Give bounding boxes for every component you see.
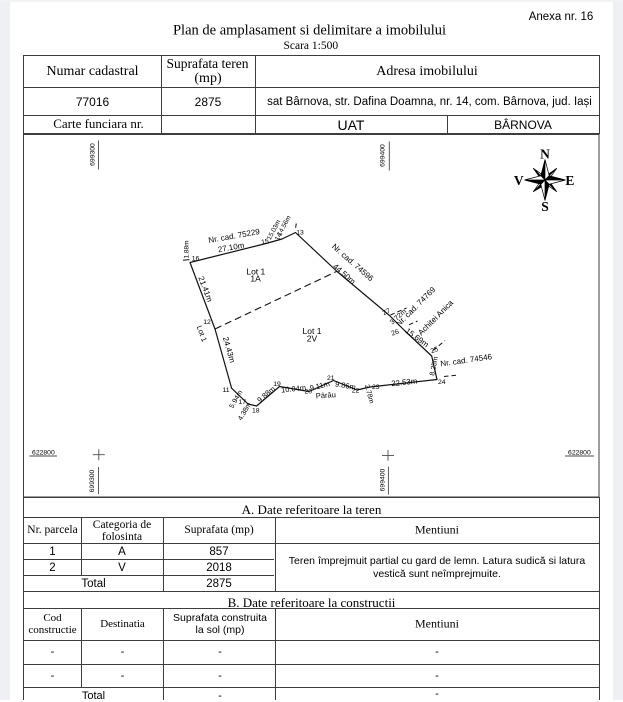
svg-text:10.04m: 10.04m [281,383,307,395]
svg-text:18: 18 [252,407,260,414]
svg-text:21: 21 [327,375,335,382]
svg-text:12: 12 [203,319,211,326]
svg-text:699400: 699400 [380,468,387,491]
svg-text:19: 19 [273,381,281,388]
svg-text:2V: 2V [307,334,318,344]
svg-text:26: 26 [391,328,401,337]
svg-text:11: 11 [222,387,229,394]
svg-text:V: V [514,173,524,188]
svg-text:1A: 1A [250,274,261,284]
svg-text:699400: 699400 [379,144,386,167]
svg-text:16: 16 [192,255,200,262]
svg-text:23: 23 [372,384,380,391]
svg-text:15: 15 [261,238,270,246]
svg-text:S: S [541,199,549,214]
svg-text:24: 24 [438,379,446,386]
svg-text:N: N [540,147,550,162]
svg-text:622800: 622800 [32,450,55,457]
svg-text:13: 13 [296,229,304,236]
svg-text:17: 17 [239,399,247,406]
svg-text:21.41m: 21.41m [196,275,214,303]
svg-text:699300: 699300 [89,469,96,492]
svg-text:1.88m: 1.88m [183,240,190,258]
svg-text:25: 25 [430,346,440,355]
svg-text:8.25m: 8.25m [429,356,440,377]
svg-text:22.53m: 22.53m [391,376,418,388]
svg-text:Pârâu: Pârâu [316,390,337,400]
svg-text:22: 22 [352,387,360,394]
svg-text:E: E [565,173,574,188]
svg-text:699300: 699300 [90,143,97,166]
svg-text:Nr. cad. 74546: Nr. cad. 74546 [440,352,493,368]
svg-text:622800: 622800 [568,450,591,457]
svg-text:20: 20 [305,389,313,396]
svg-text:Lot 1: Lot 1 [195,324,209,343]
